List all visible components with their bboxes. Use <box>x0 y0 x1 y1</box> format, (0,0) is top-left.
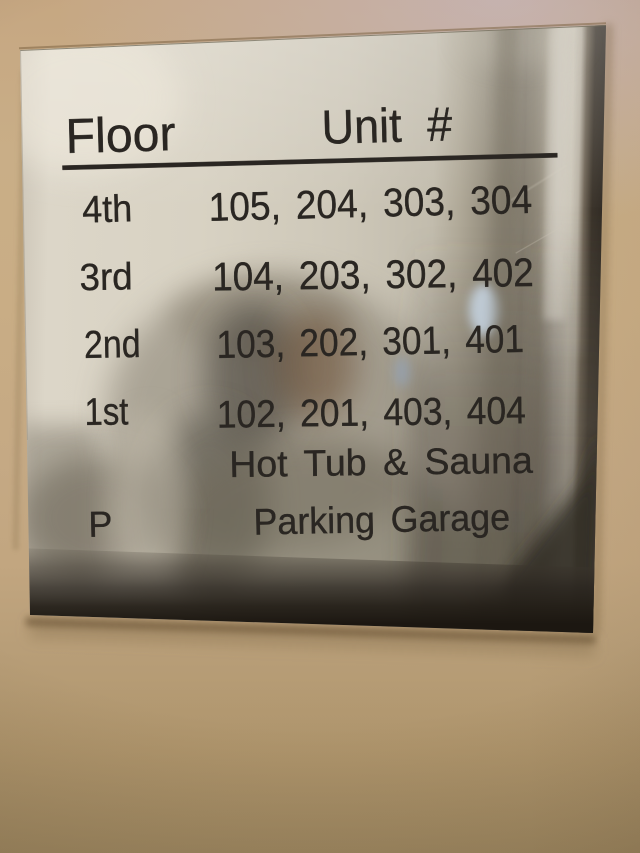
svg-text:102, 201, 403, 404: 102, 201, 403, 404 <box>217 389 527 436</box>
svg-text:1st: 1st <box>84 390 129 434</box>
svg-text:104, 203, 302, 402: 104, 203, 302, 402 <box>212 251 534 299</box>
svg-text:4th: 4th <box>82 188 133 231</box>
svg-text:Unit #: Unit # <box>321 98 454 154</box>
svg-text:Hot Tub & Sauna: Hot Tub & Sauna <box>229 440 533 485</box>
svg-text:2nd: 2nd <box>84 323 141 367</box>
svg-text:103, 202, 301, 401: 103, 202, 301, 401 <box>216 318 524 367</box>
svg-text:3rd: 3rd <box>79 256 133 299</box>
svg-text:Parking Garage: Parking Garage <box>253 497 510 543</box>
svg-text:105, 204, 303, 304: 105, 204, 303, 304 <box>208 178 532 230</box>
svg-text:Floor: Floor <box>65 107 176 164</box>
svg-text:P: P <box>88 503 113 544</box>
